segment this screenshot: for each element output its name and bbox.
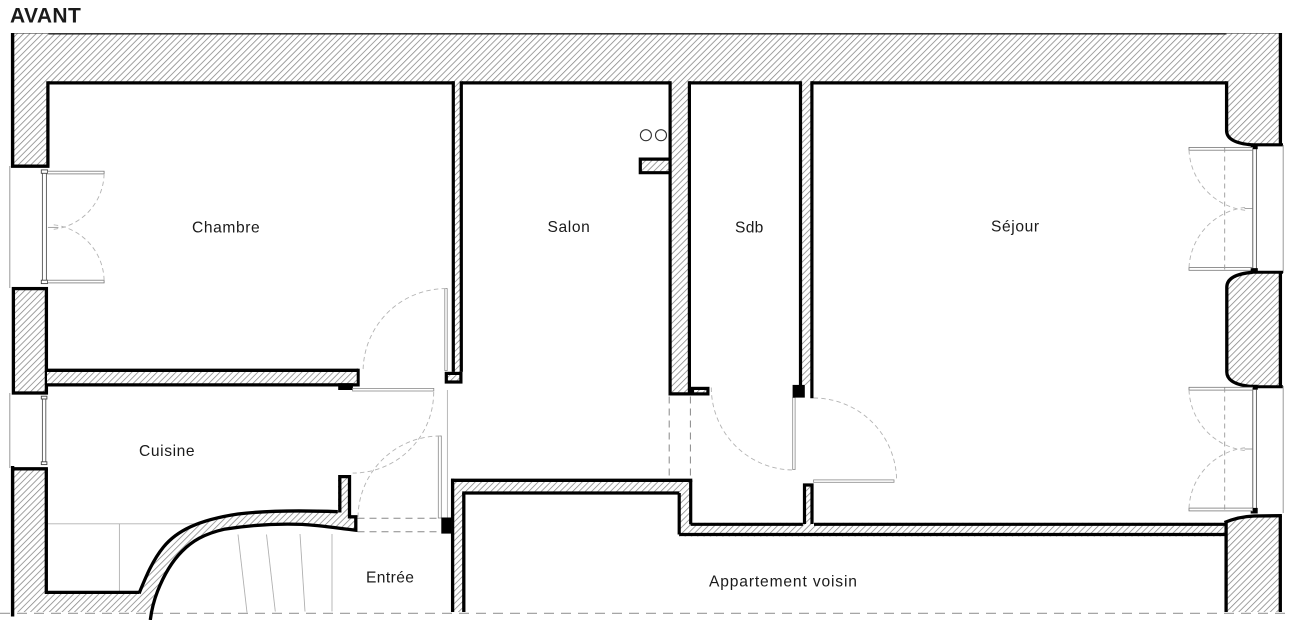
svg-text:Appartement voisin: Appartement voisin [709, 574, 858, 591]
svg-text:AVANT: AVANT [10, 5, 81, 28]
svg-text:Cuisine: Cuisine [139, 443, 195, 460]
svg-text:Salon: Salon [548, 219, 591, 236]
svg-text:Séjour: Séjour [991, 219, 1040, 236]
svg-text:Sdb: Sdb [735, 220, 764, 237]
svg-text:Chambre: Chambre [192, 220, 260, 237]
svg-text:Entrée: Entrée [366, 570, 414, 587]
